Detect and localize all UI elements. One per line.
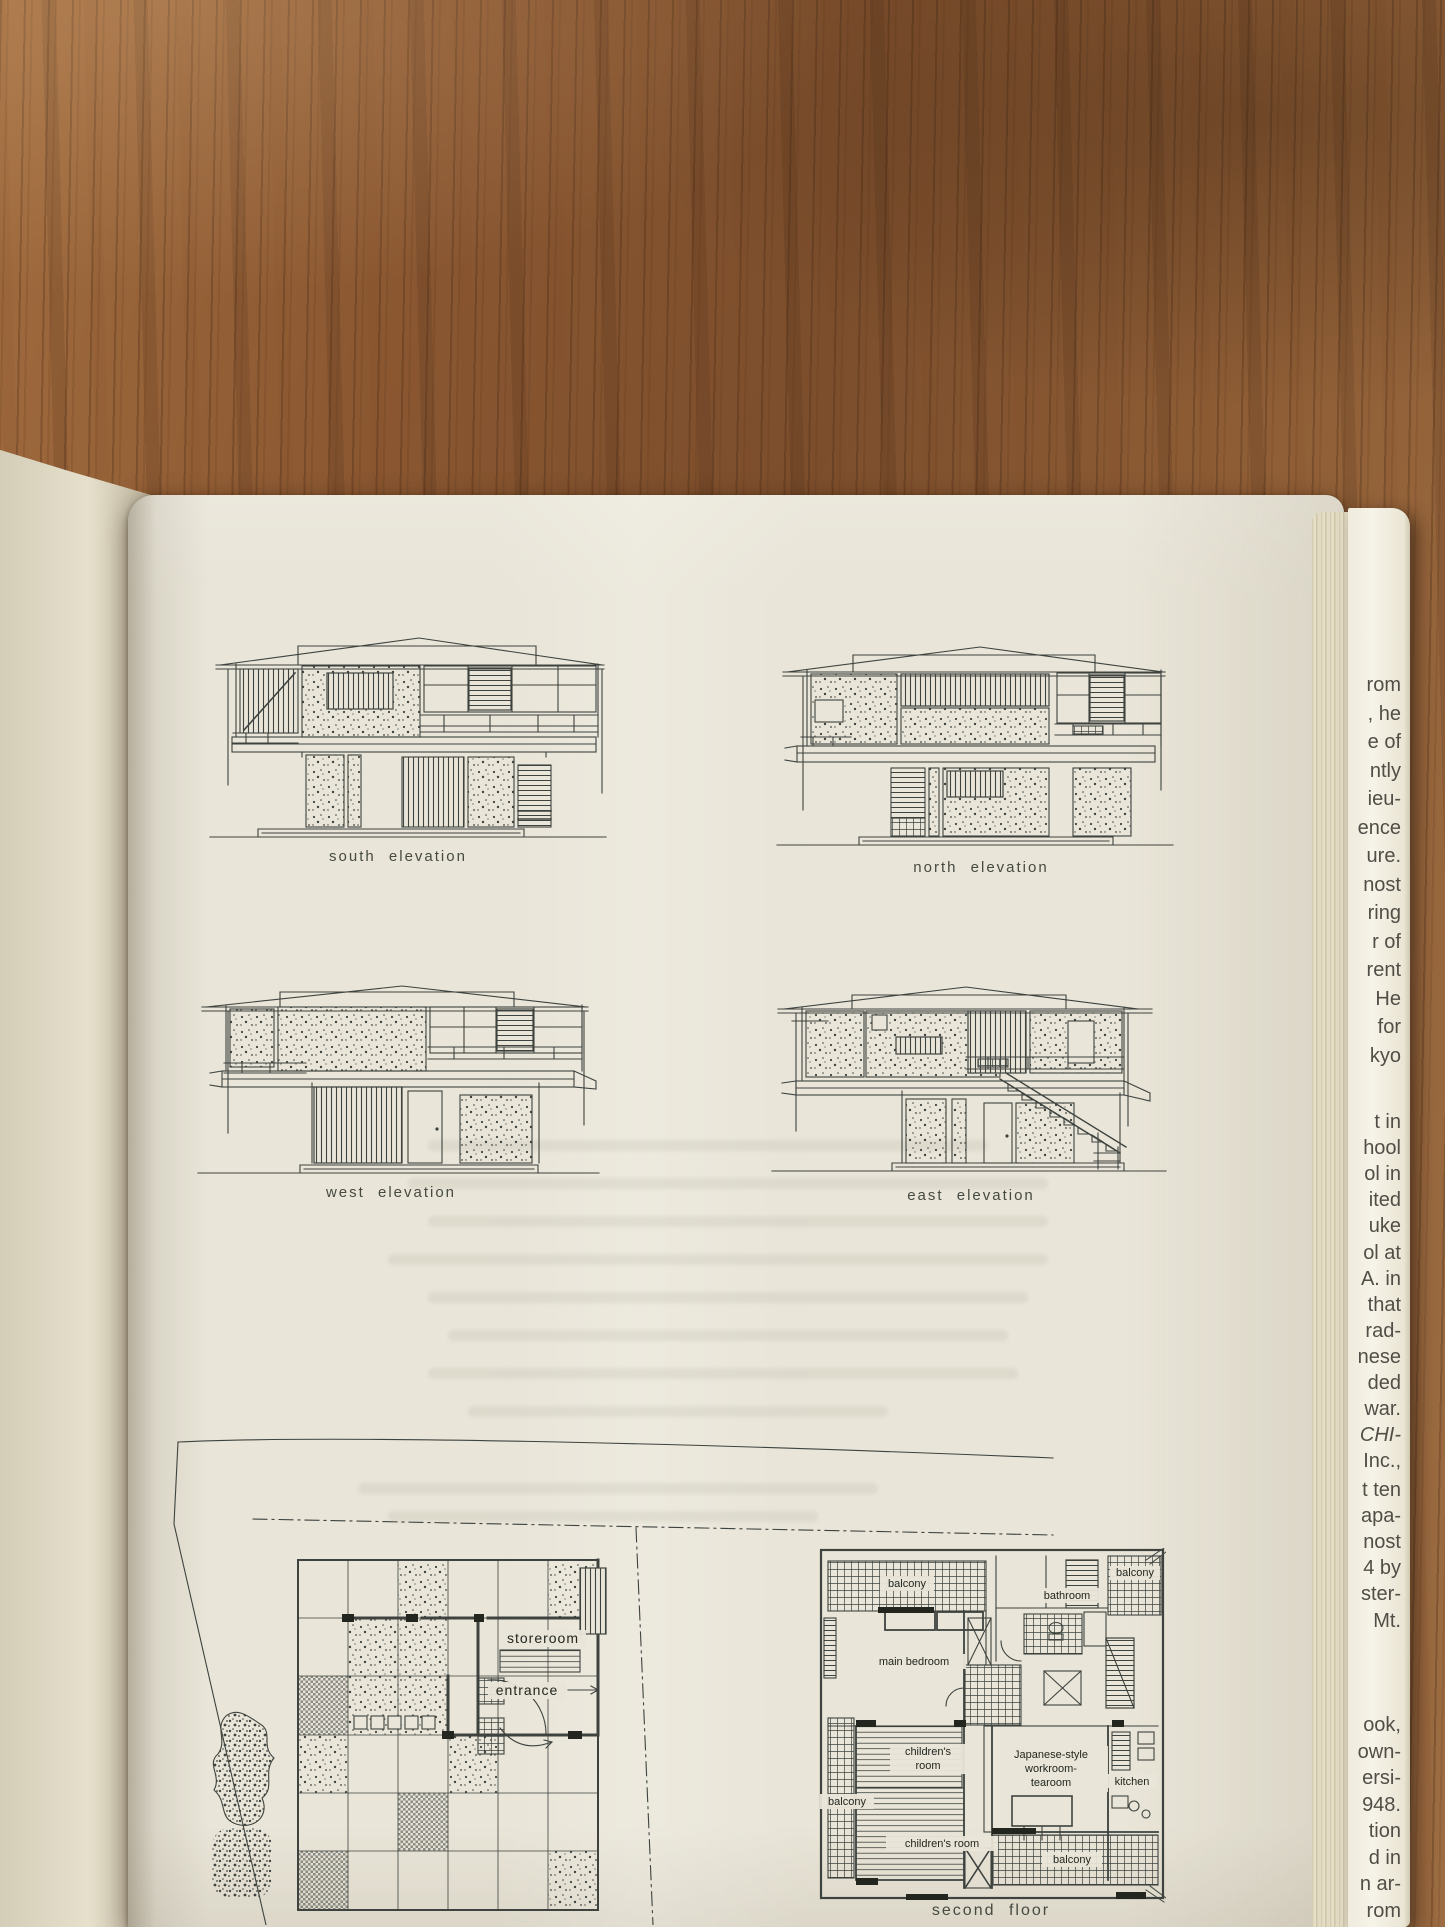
fore-edge-text-fragment: ook, (1363, 1715, 1401, 1735)
fore-edge-text-fragment: Mt. (1373, 1611, 1401, 1631)
west-elevation-drawing (194, 983, 604, 1183)
workroom-label-line3: tearoom (1031, 1777, 1071, 1789)
fore-edge-text-fragment: nese (1358, 1347, 1401, 1367)
fore-edge-text-fragment: apa- (1361, 1506, 1401, 1526)
storeroom-label: storeroom (507, 1630, 579, 1646)
fore-edge-text-fragment: ntly (1370, 761, 1401, 781)
fore-edge-text-fragment: rent (1367, 960, 1401, 980)
kitchen-label: kitchen (1115, 1776, 1150, 1788)
fore-edge-text-fragment: rom (1367, 1901, 1401, 1921)
fore-edge-text-fragment: ol at (1363, 1243, 1401, 1263)
bathroom-label: bathroom (1044, 1590, 1090, 1602)
fore-edge-text-fragment: ster- (1361, 1584, 1401, 1604)
balcony-top-right-label: balcony (1116, 1567, 1154, 1579)
south-elevation-drawing (206, 633, 611, 848)
fore-edge-text-fragment: war. (1364, 1399, 1401, 1419)
fore-edge-text-fragment: uke (1369, 1216, 1401, 1236)
fore-edge-text-fragment: rad- (1365, 1321, 1401, 1341)
fore-edge-text-fragment: hool (1363, 1138, 1401, 1158)
childrens-room-upper-label-line2: room (915, 1760, 940, 1772)
workroom-label-line1: Japanese-style (1014, 1749, 1088, 1761)
south-elevation-caption: south elevation (288, 848, 508, 865)
book-fore-edge-pages (1312, 512, 1348, 1927)
childrens-room-upper-label-line1: children's (905, 1746, 952, 1758)
fore-edge-text-fragment: own- (1358, 1742, 1401, 1762)
fore-edge-text-fragment: nost (1363, 1532, 1401, 1552)
fore-edge-text-fragment: rom (1367, 675, 1401, 695)
fore-edge-text-fragment: ded (1368, 1373, 1401, 1393)
fore-edge-text-fragment: A. in (1361, 1269, 1401, 1289)
fore-edge-text-fragment: CHI- (1360, 1425, 1401, 1445)
balcony-left-label: balcony (828, 1796, 866, 1808)
fore-edge-text-fragment: ited (1369, 1190, 1401, 1210)
fore-edge-text-fragment: Inc., (1363, 1451, 1401, 1471)
fore-edge-text-fragment: t in (1374, 1112, 1401, 1132)
fore-edge-text-fragment: n ar- (1360, 1874, 1401, 1894)
fore-edge-text-fragment: ieu- (1368, 789, 1401, 809)
east-elevation-drawing (768, 981, 1173, 1181)
fore-edge-text-fragment: tion (1369, 1821, 1401, 1841)
fore-edge-text-fragment: kyo (1370, 1046, 1401, 1066)
childrens-room-lower-label: children's room (905, 1838, 979, 1850)
fore-edge-text-fragment: that (1368, 1295, 1401, 1315)
west-elevation-caption: west elevation (281, 1184, 501, 1201)
fore-edge-text-fragment: r of (1372, 932, 1401, 952)
main-bedroom-label: main bedroom (879, 1656, 949, 1668)
fore-edge-text-fragment: , he (1368, 704, 1401, 724)
fore-edge-text-fragment: He (1375, 989, 1401, 1009)
fore-edge-text-fragment: ure. (1367, 846, 1401, 866)
book-photo-scene: south elevation (0, 0, 1445, 1927)
fore-edge-text-fragment: ersi- (1362, 1768, 1401, 1788)
fore-edge-text-fragment: 948. (1362, 1795, 1401, 1815)
east-elevation-caption: east elevation (861, 1187, 1081, 1204)
fore-edge-text-fragment: ring (1368, 903, 1401, 923)
second-floor-caption: second floor (881, 1902, 1101, 1920)
fore-edge-text-fragment: nost (1363, 875, 1401, 895)
north-elevation-caption: north elevation (871, 859, 1091, 876)
entrance-label: entrance (496, 1682, 558, 1698)
fore-edge-text-column: rom, hee ofntlyieu-enceure.nostringr ofr… (1348, 508, 1410, 1927)
north-elevation-drawing (773, 640, 1178, 855)
balcony-bottom-label: balcony (1053, 1854, 1091, 1866)
second-floor-plan-drawing: balcony bathroom balcony main bedroom ch… (816, 1548, 1166, 1903)
fore-edge-text-fragment: ol in (1364, 1164, 1401, 1184)
fore-edge-text-fragment: d in (1369, 1848, 1401, 1868)
fore-edge-text-fragment: ence (1358, 818, 1401, 838)
workroom-label-line2: workroom- (1024, 1763, 1077, 1775)
balcony-top-label: balcony (888, 1578, 926, 1590)
fore-edge-text-fragment: 4 by (1363, 1558, 1401, 1578)
fore-edge-text-fragment: e of (1368, 732, 1401, 752)
fore-edge-text-fragment: t ten (1362, 1480, 1401, 1500)
fore-edge-text-fragment: for (1378, 1017, 1401, 1037)
book-page: south elevation (128, 495, 1344, 1927)
